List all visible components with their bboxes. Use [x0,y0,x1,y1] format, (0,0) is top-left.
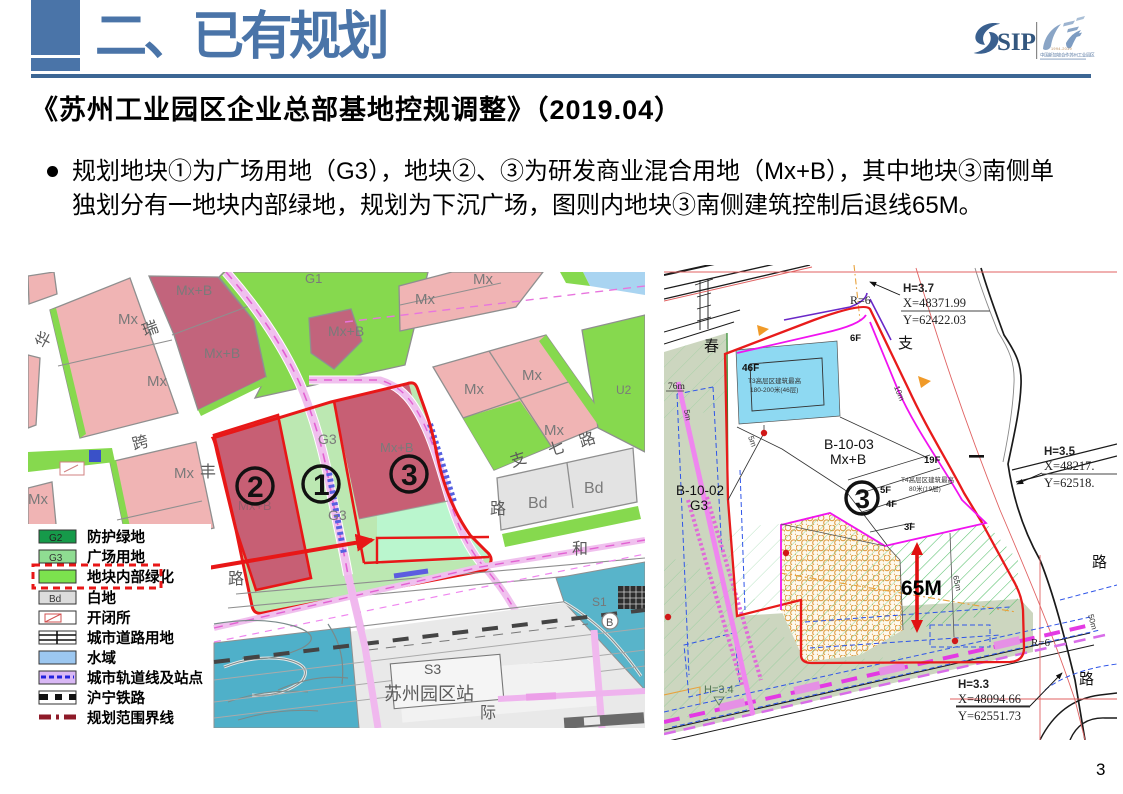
svg-text:Mx: Mx [464,381,484,398]
svg-text:Mx+B: Mx+B [328,323,364,339]
svg-text:H=3.4: H=3.4 [704,684,734,696]
svg-text:G2: G2 [49,533,63,544]
svg-text:180-200米(46层): 180-200米(46层) [750,385,798,394]
svg-text:中国新加坡合作苏州工业园区: 中国新加坡合作苏州工业园区 [1040,52,1095,59]
svg-text:80米(19层): 80米(19层) [909,484,941,493]
svg-text:防护绿地: 防护绿地 [87,528,145,546]
svg-text:Mx: Mx [118,311,138,328]
svg-text:Bd: Bd [49,594,61,605]
svg-text:Mx+B: Mx+B [176,282,212,298]
svg-text:际: 际 [480,704,496,722]
svg-text:Mx: Mx [473,272,493,288]
svg-text:SIP: SIP [997,29,1036,56]
svg-text:路: 路 [1079,671,1094,688]
svg-text:和: 和 [572,540,588,558]
svg-text:X=48371.99: X=48371.99 [903,296,966,310]
svg-text:Mx+B: Mx+B [204,345,240,361]
svg-text:规划范围界线: 规划范围界线 [87,709,174,727]
svg-text:6F: 6F [850,333,861,344]
svg-text:Bd: Bd [584,480,604,497]
svg-text:Mx: Mx [147,373,167,390]
svg-text:G3: G3 [318,431,337,447]
svg-text:2: 2 [247,471,264,504]
svg-text:支: 支 [898,335,913,352]
svg-text:Bd: Bd [528,495,548,512]
svg-text:春: 春 [704,338,719,355]
svg-text:沪宁铁路: 沪宁铁路 [87,689,145,707]
svg-text:G3: G3 [690,498,708,513]
svg-text:1: 1 [313,469,330,502]
svg-text:5F: 5F [880,485,891,496]
svg-text:1994-2019: 1994-2019 [1051,47,1072,51]
svg-text:3: 3 [401,459,418,492]
svg-text:4F: 4F [886,499,897,510]
svg-text:H=3.7: H=3.7 [903,283,934,295]
svg-text:S3: S3 [424,661,441,677]
svg-text:R=6: R=6 [850,293,871,307]
svg-text:Mx: Mx [174,465,194,482]
svg-text:开闭所: 开闭所 [87,609,131,627]
svg-text:Y=62518.: Y=62518. [1044,476,1094,490]
svg-text:R=6: R=6 [1031,637,1051,649]
svg-text:G3: G3 [49,553,63,564]
svg-text:65M: 65M [901,577,942,600]
svg-text:3: 3 [855,484,870,514]
svg-text:B: B [606,617,613,629]
svg-text:Mx: Mx [28,491,48,508]
svg-text:B-10-02: B-10-02 [676,483,724,498]
svg-text:水域: 水域 [87,649,116,667]
svg-text:H=3.3: H=3.3 [958,679,989,691]
svg-text:Y=62422.03: Y=62422.03 [903,313,966,327]
svg-text:19F: 19F [924,455,941,466]
svg-text:U2: U2 [616,383,632,397]
svg-text:路: 路 [1092,554,1107,571]
svg-text:Mx: Mx [415,291,435,308]
svg-text:X=48217.: X=48217. [1044,459,1094,473]
svg-text:Y=62551.73: Y=62551.73 [958,709,1021,723]
svg-text:路: 路 [490,500,506,518]
svg-text:46F: 46F [742,363,759,374]
svg-text:T4高层区建筑最高: T4高层区建筑最高 [901,475,955,484]
svg-text:H=3.5: H=3.5 [1044,446,1076,458]
svg-text:城市道路用地: 城市道路用地 [87,629,174,647]
svg-text:苏州园区站: 苏州园区站 [384,684,474,704]
svg-text:G3: G3 [328,507,347,523]
svg-text:路: 路 [228,570,244,588]
svg-text:S1: S1 [592,595,607,609]
svg-text:Mx: Mx [544,422,564,439]
svg-text:X=48094.66: X=48094.66 [958,692,1021,706]
svg-text:城市轨道线及站点: 城市轨道线及站点 [87,669,203,687]
svg-text:白地: 白地 [87,589,116,607]
svg-text:B-10-03: B-10-03 [824,436,874,452]
svg-text:Mx: Mx [522,367,542,384]
svg-text:Mx+B: Mx+B [380,440,414,455]
svg-text:广场用地: 广场用地 [87,548,145,566]
svg-text:G1: G1 [305,272,322,286]
svg-text:丰: 丰 [200,463,216,481]
svg-text:T3高层区建筑最高: T3高层区建筑最高 [748,376,802,385]
svg-text:3F: 3F [904,522,915,533]
svg-text:Mx+B: Mx+B [830,451,866,467]
svg-text:76m: 76m [668,382,686,392]
